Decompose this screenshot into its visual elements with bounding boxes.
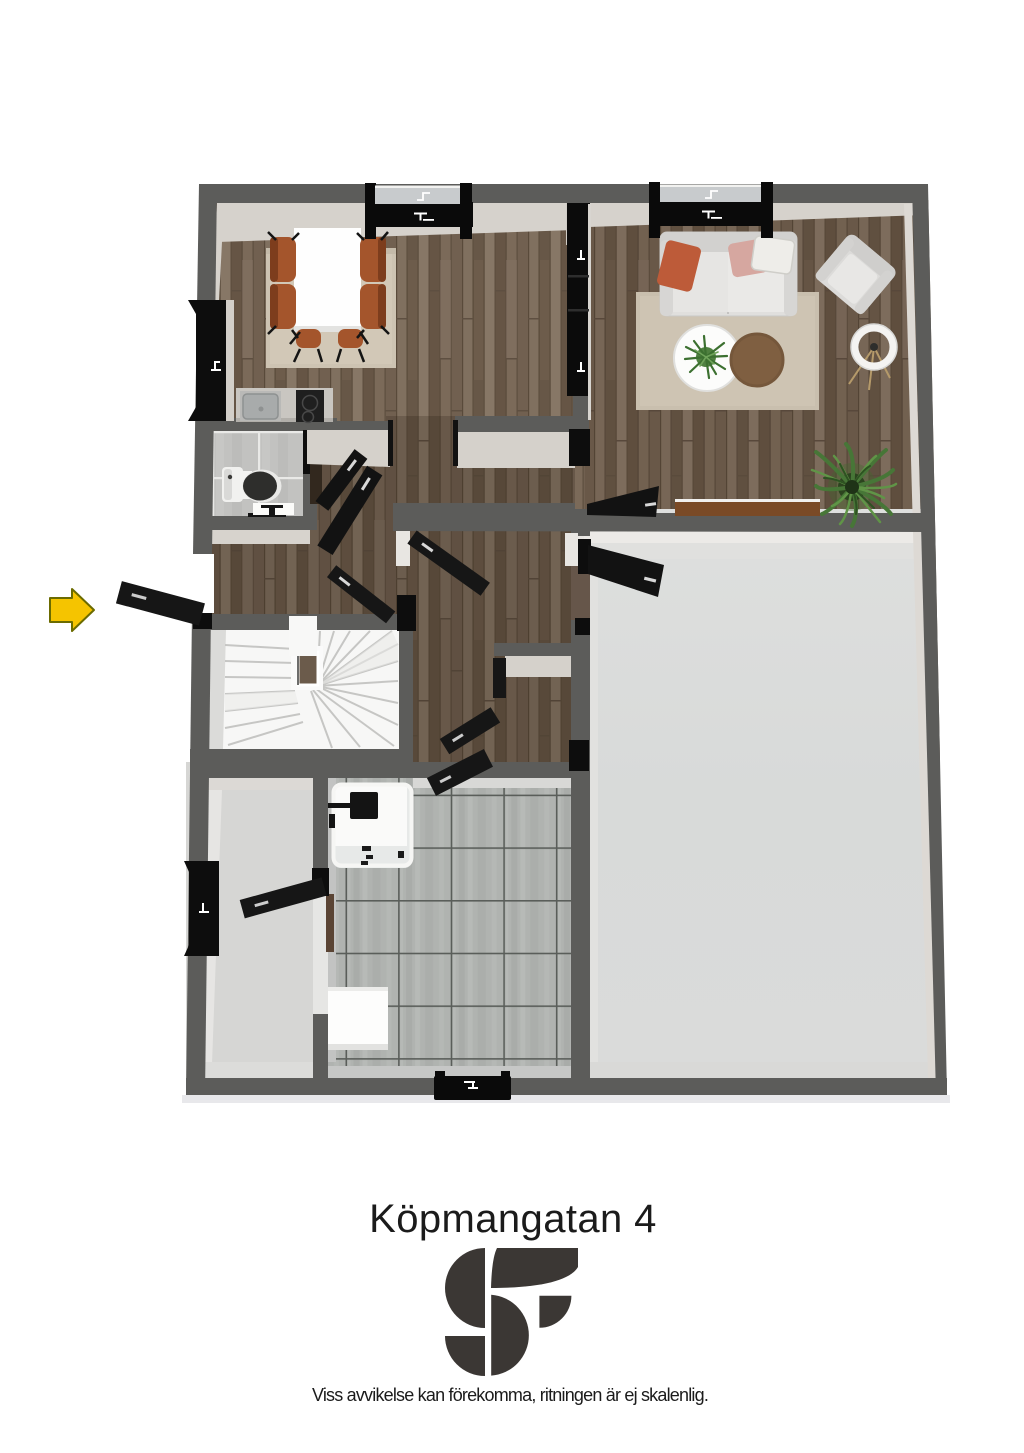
svg-text:Viss avvikelse kan förekomma,: Viss avvikelse kan förekomma, ritningen … <box>312 1385 708 1405</box>
svg-text:Köpmangatan 4: Köpmangatan 4 <box>369 1197 657 1241</box>
